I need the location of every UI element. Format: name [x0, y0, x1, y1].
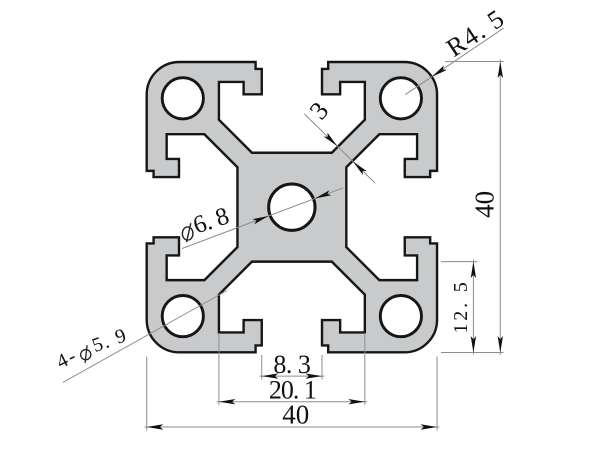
svg-text:40: 40 — [282, 399, 309, 429]
svg-text:12. 5: 12. 5 — [450, 280, 472, 334]
svg-text:40: 40 — [470, 191, 500, 218]
svg-text:8. 3: 8. 3 — [273, 350, 310, 379]
